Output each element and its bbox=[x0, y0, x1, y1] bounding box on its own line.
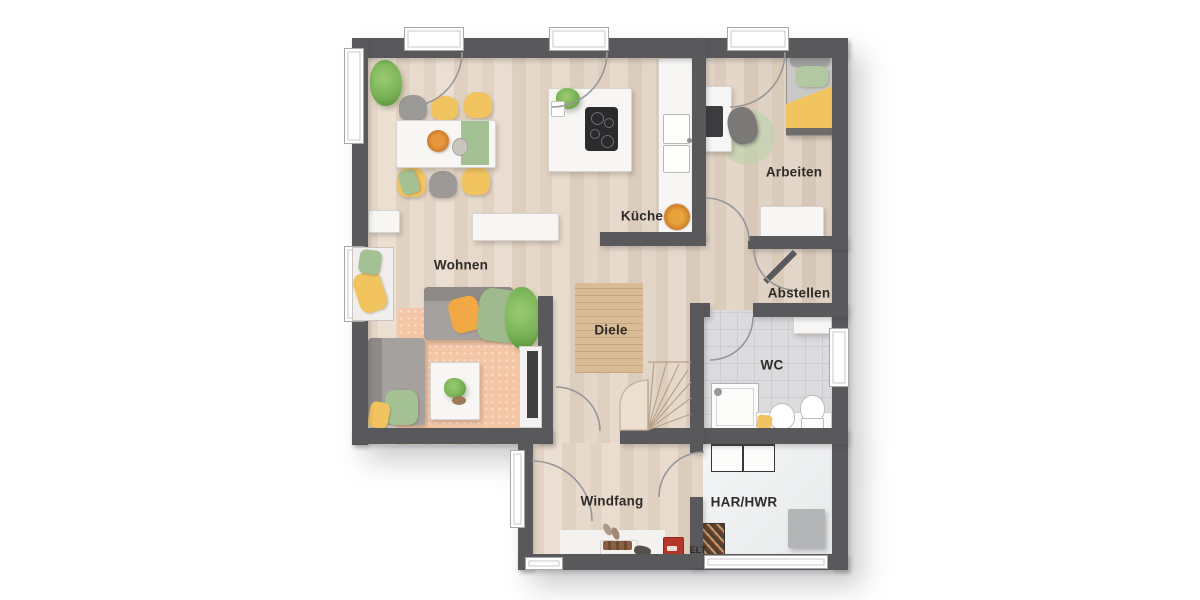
window-top-1 bbox=[404, 27, 464, 51]
wall-kitchen-hall bbox=[600, 232, 706, 246]
dining-chair bbox=[429, 171, 457, 198]
cutting-board bbox=[551, 101, 565, 117]
shower-head bbox=[714, 388, 722, 396]
window-top-2 bbox=[549, 27, 609, 51]
room-label-wohnen: Wohnen bbox=[434, 258, 488, 273]
room-label-wc: WC bbox=[761, 358, 784, 373]
room-label-arbeiten: Arbeiten bbox=[766, 165, 822, 180]
storage-box bbox=[788, 509, 825, 548]
plant-by-tv bbox=[505, 287, 541, 349]
office-sideboard bbox=[760, 206, 824, 239]
window-har-bottom bbox=[704, 555, 828, 569]
fruit-bowl-table bbox=[427, 130, 449, 152]
window-left bbox=[344, 48, 364, 144]
wall-har-left-b bbox=[690, 497, 703, 568]
bed-foot-board bbox=[786, 128, 833, 135]
decor-tray bbox=[452, 396, 466, 405]
wall-kitchen-office bbox=[692, 38, 706, 238]
dining-chair bbox=[399, 95, 427, 121]
dining-chair bbox=[462, 166, 490, 195]
wall-living-bottom bbox=[352, 428, 553, 444]
sideboard-small bbox=[368, 210, 400, 233]
room-label-elt: ELT bbox=[690, 545, 707, 555]
tv bbox=[527, 351, 538, 418]
room-label-windfang: Windfang bbox=[581, 494, 644, 509]
fruit-bowl-counter bbox=[663, 203, 691, 231]
dining-chair bbox=[431, 96, 458, 120]
sink-basin bbox=[663, 114, 690, 144]
bed-pillow-green bbox=[796, 66, 828, 87]
burner bbox=[601, 135, 614, 148]
window-entry-bottom bbox=[525, 557, 563, 570]
burner bbox=[604, 118, 614, 128]
floor-plan: Wohnen Küche Arbeiten Abstellen Diele WC… bbox=[0, 0, 1200, 600]
coffee-table-plant bbox=[444, 378, 466, 398]
electrical-panel-slot bbox=[667, 546, 677, 551]
entrance-door-leaf bbox=[510, 450, 525, 528]
wash-basin bbox=[769, 403, 795, 430]
wall-har-left-a bbox=[690, 443, 703, 453]
room-label-diele: Diele bbox=[594, 323, 627, 338]
floor-plan-canvas: Wohnen Küche Arbeiten Abstellen Diele WC… bbox=[0, 0, 1200, 600]
plant-corner bbox=[370, 60, 402, 106]
vase bbox=[452, 138, 468, 156]
wall-mid-bottom bbox=[620, 428, 848, 444]
wall-office-storage bbox=[748, 236, 848, 249]
room-label-abstellen: Abstellen bbox=[768, 286, 831, 301]
dining-chair bbox=[464, 92, 492, 118]
window-top-3 bbox=[727, 27, 789, 51]
shoe-bench-top bbox=[603, 541, 632, 550]
wall-wc-left bbox=[690, 303, 704, 443]
room-label-kueche: Küche bbox=[621, 209, 663, 224]
room-label-har-hwr: HAR/HWR bbox=[711, 495, 778, 510]
burner bbox=[591, 112, 604, 125]
burner bbox=[590, 129, 600, 139]
window-wc bbox=[829, 328, 849, 387]
sink-basin bbox=[663, 145, 690, 173]
wall-storage-wc-b bbox=[753, 303, 848, 317]
sideboard-large bbox=[472, 213, 559, 241]
window-seat-pillow-green bbox=[357, 249, 382, 276]
